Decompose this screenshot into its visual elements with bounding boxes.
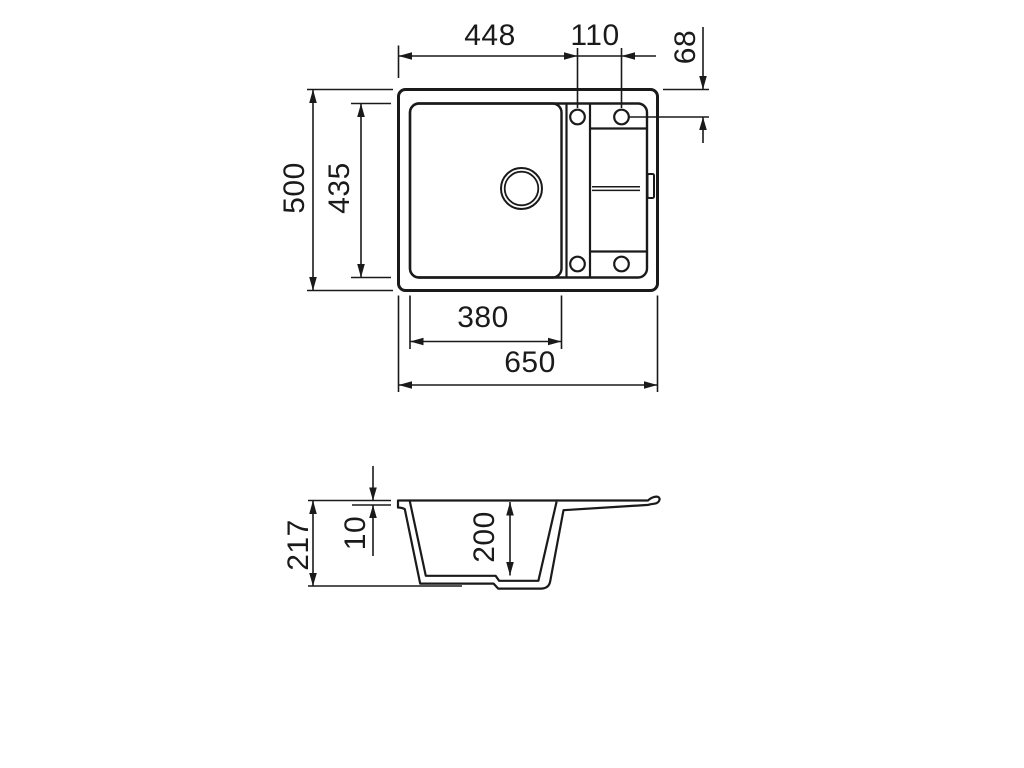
dim-label-217: 217 bbox=[284, 519, 314, 571]
arrowhead bbox=[399, 52, 413, 60]
arrowhead bbox=[357, 264, 365, 278]
arrowhead bbox=[369, 488, 377, 501]
dim-435-graphics bbox=[351, 104, 391, 278]
dim-label-200: 200 bbox=[470, 511, 500, 563]
dim-label-448: 448 bbox=[464, 21, 516, 51]
dim-217-graphics bbox=[308, 501, 462, 587]
arrowhead bbox=[410, 338, 424, 346]
drain-outer-ring bbox=[501, 168, 542, 209]
drain-inner-ring bbox=[505, 172, 539, 206]
dim-label-68: 68 bbox=[671, 30, 701, 64]
dim-label-500: 500 bbox=[280, 162, 310, 214]
tap-hole-top-left bbox=[570, 110, 585, 125]
arrowhead bbox=[309, 573, 317, 586]
tap-hole-bottom-left bbox=[570, 257, 585, 272]
top-view bbox=[307, 27, 709, 392]
arrowhead bbox=[309, 90, 317, 104]
dim-448-110-graphics bbox=[399, 46, 657, 109]
dim-label-435: 435 bbox=[325, 162, 355, 214]
arrowhead bbox=[506, 562, 514, 576]
tap-hole-top-right bbox=[614, 110, 629, 125]
arrowhead bbox=[564, 52, 578, 60]
arrowhead bbox=[644, 381, 658, 389]
arrowhead bbox=[309, 277, 317, 291]
overflow-slot bbox=[648, 174, 655, 198]
arrowhead bbox=[506, 502, 514, 516]
dim-label-10: 10 bbox=[341, 516, 371, 550]
arrowhead bbox=[622, 52, 636, 60]
dim-label-380: 380 bbox=[457, 303, 509, 333]
arrowhead bbox=[399, 381, 413, 389]
dim-label-650: 650 bbox=[504, 348, 556, 378]
arrowhead bbox=[699, 117, 707, 130]
arrowhead bbox=[548, 338, 562, 346]
dim-200-graphics bbox=[506, 502, 514, 576]
sink-technical-drawing: 448 110 68 500 435 380 650 217 10 200 bbox=[0, 0, 1024, 768]
tap-hole-bottom-right bbox=[614, 257, 629, 272]
drawing-canvas bbox=[0, 0, 1024, 768]
arrowhead bbox=[357, 104, 365, 118]
arrowhead bbox=[699, 76, 707, 90]
arrowhead bbox=[309, 501, 317, 515]
dim-label-110: 110 bbox=[570, 21, 619, 51]
